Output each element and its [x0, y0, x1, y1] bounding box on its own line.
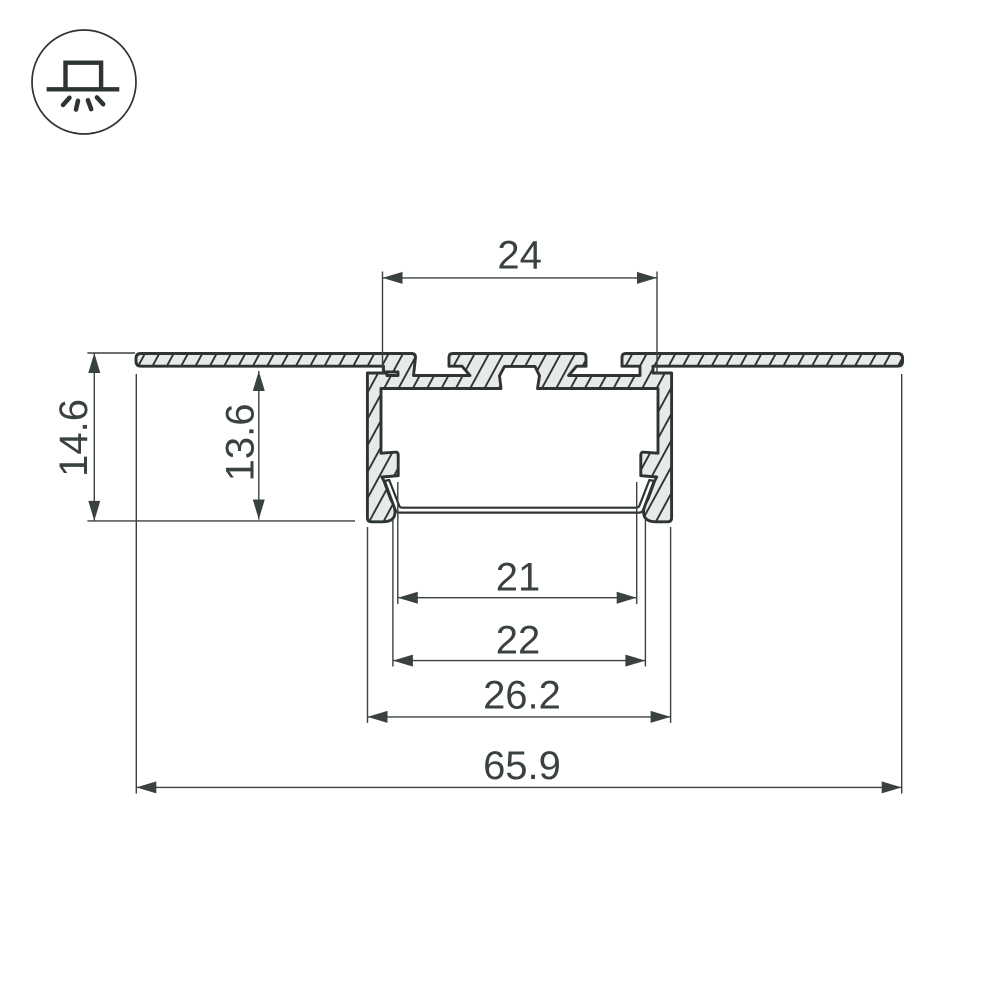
svg-text:26.2: 26.2: [483, 674, 561, 718]
svg-text:22: 22: [496, 618, 541, 662]
svg-text:21: 21: [496, 556, 541, 600]
svg-text:13.6: 13.6: [218, 403, 262, 481]
svg-text:65.9: 65.9: [483, 744, 561, 788]
svg-text:24: 24: [497, 234, 542, 278]
svg-text:14.6: 14.6: [52, 399, 96, 477]
